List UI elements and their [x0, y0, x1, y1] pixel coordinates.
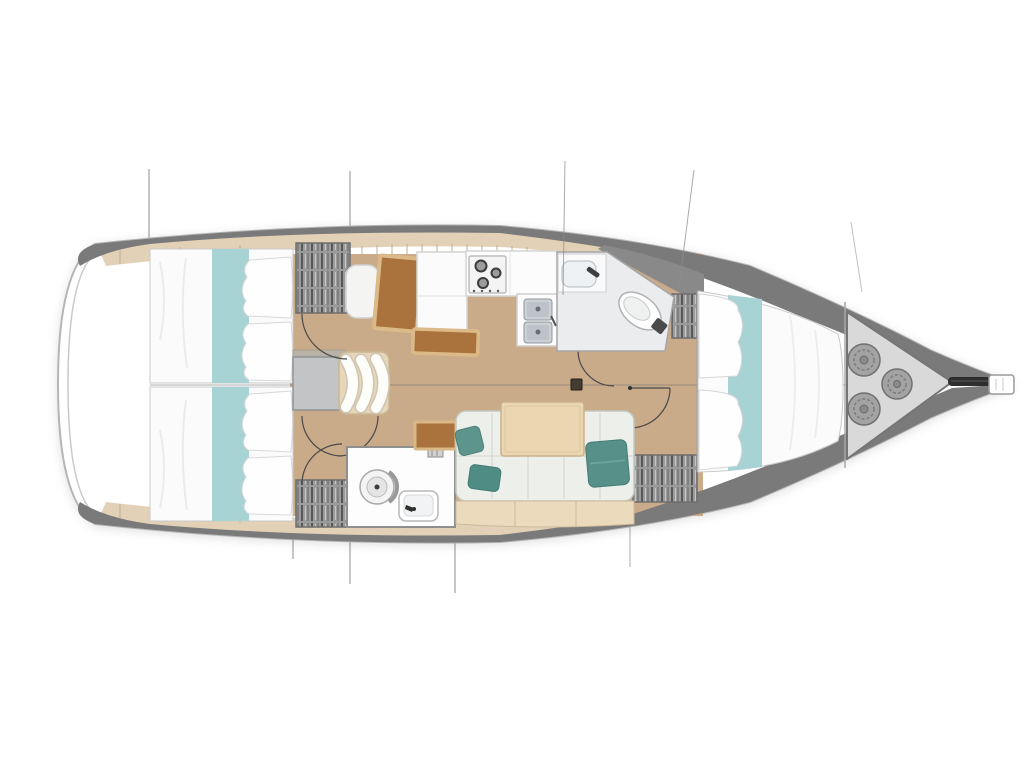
pillow — [699, 294, 743, 378]
sofa-base — [456, 501, 634, 527]
wardrobe-port-aft — [296, 243, 350, 313]
nav-bench — [413, 329, 479, 355]
pillow — [242, 391, 292, 452]
pillow — [699, 390, 743, 470]
step-treads — [346, 359, 384, 408]
yacht-floor-plan — [0, 0, 1024, 768]
floor-plan-canvas — [0, 0, 1024, 768]
toilet — [360, 470, 397, 504]
wardrobe-forward-top — [672, 294, 697, 338]
wardrobe-forward-bottom — [633, 455, 697, 502]
sink-drain — [536, 330, 541, 335]
threshold — [293, 350, 345, 357]
faucet-icon — [412, 507, 416, 511]
rope-coil — [882, 369, 912, 399]
aft-cabin-starboard — [150, 387, 293, 521]
chart-table — [374, 255, 423, 331]
rope-coil — [848, 344, 880, 376]
burner — [476, 261, 487, 272]
engine-cover-pad — [293, 357, 342, 410]
companionway-steps — [293, 350, 389, 414]
rigging-line — [851, 222, 862, 292]
door-hinge — [628, 386, 632, 390]
sail-locker — [845, 302, 952, 468]
pillow — [242, 257, 292, 318]
head-aft-bottom — [347, 447, 455, 527]
sink-drain — [536, 307, 541, 312]
burner — [478, 278, 488, 288]
saloon-table — [501, 402, 584, 456]
throw-pillow — [467, 464, 501, 492]
aft-cabin-port — [150, 249, 293, 383]
rope-coil — [848, 393, 880, 425]
pillow — [242, 322, 293, 381]
saloon — [454, 402, 634, 527]
mast-step — [571, 379, 582, 390]
wash-basin-unit — [399, 491, 438, 521]
burner — [492, 269, 501, 278]
wardrobe-starboard-aft — [296, 480, 348, 527]
side-locker — [415, 422, 456, 449]
bowsprit-plate — [989, 375, 1014, 394]
pillow — [242, 456, 293, 515]
wash-basin — [562, 261, 596, 287]
bed-runner — [212, 387, 249, 521]
